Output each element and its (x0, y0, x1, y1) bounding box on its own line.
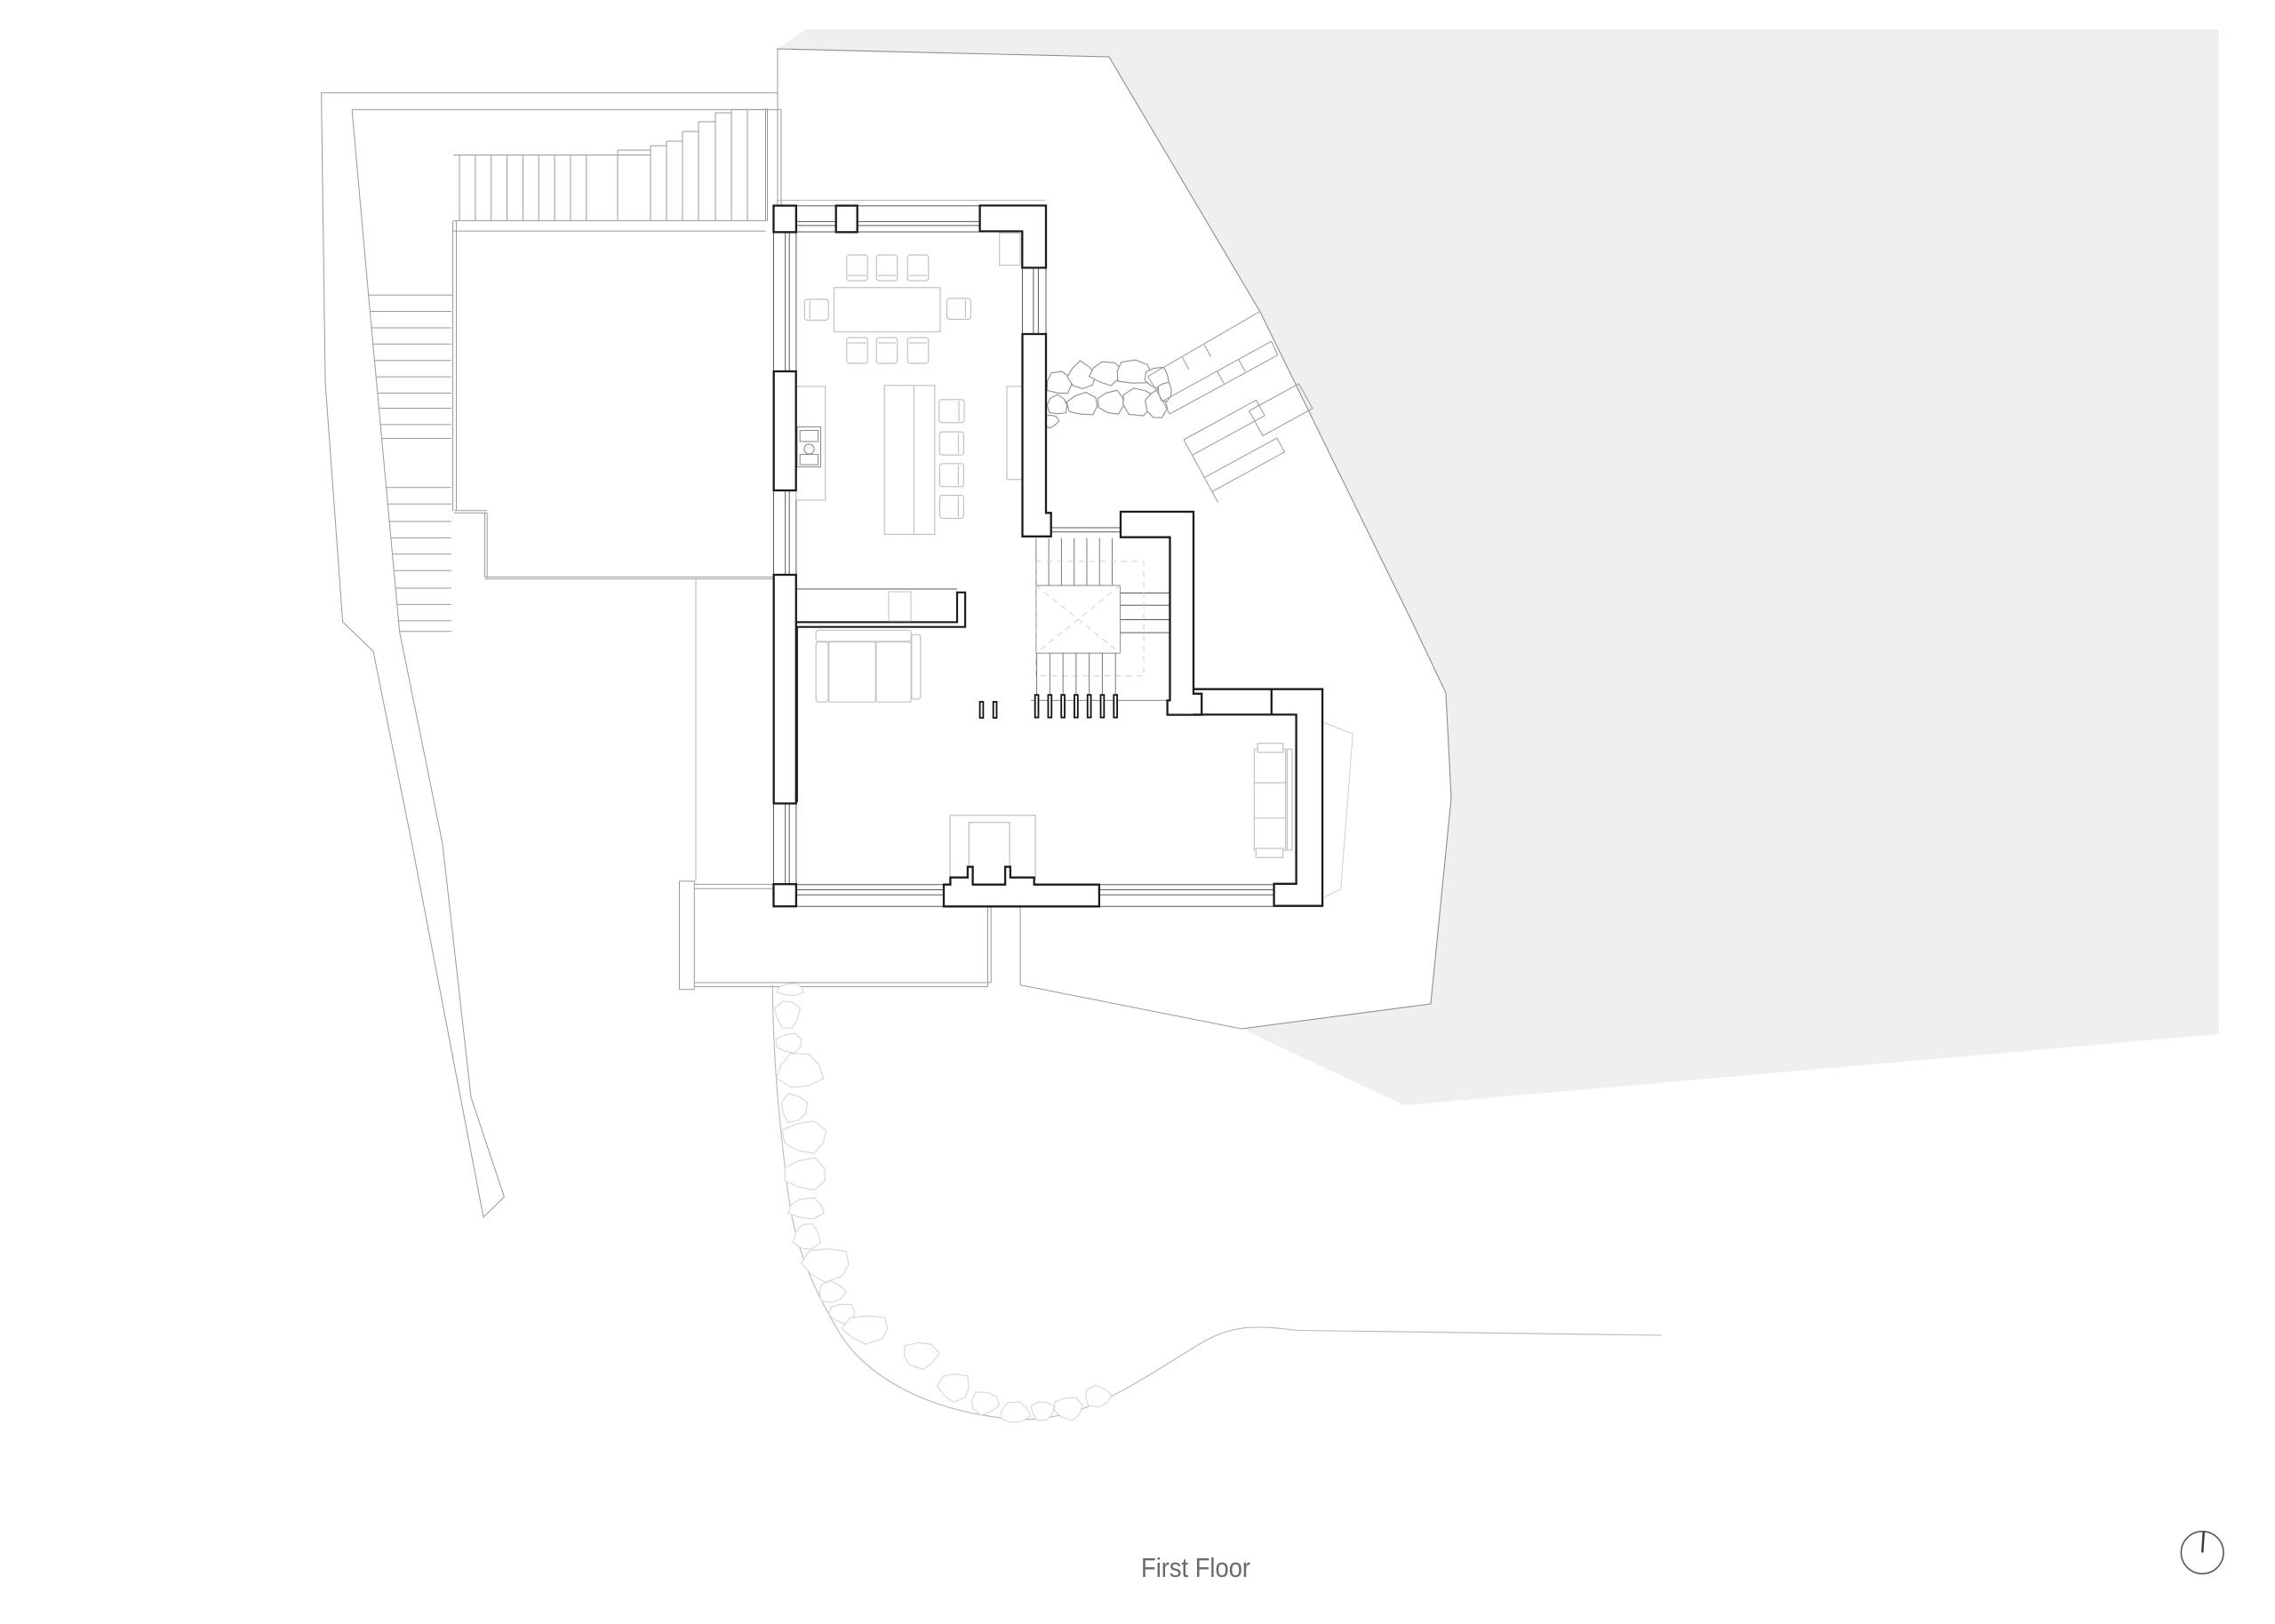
svg-text:First Floor: First Floor (1141, 1553, 1250, 1583)
